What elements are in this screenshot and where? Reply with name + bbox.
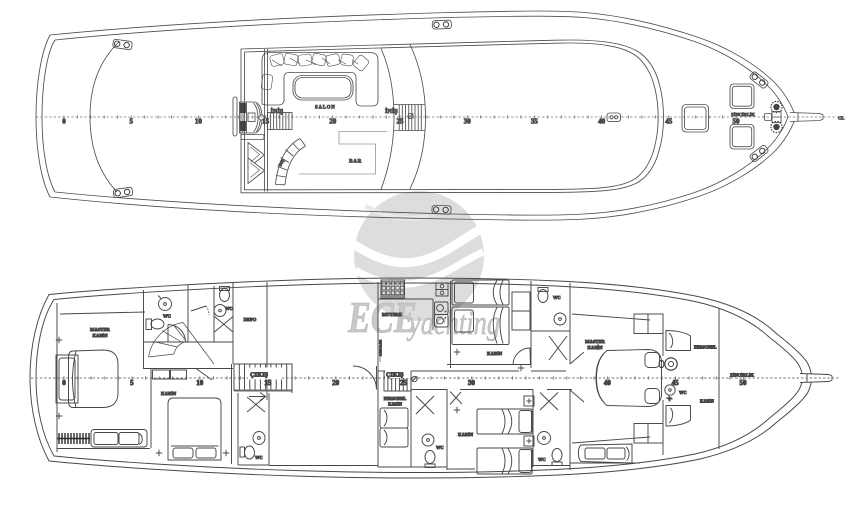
svg-text:CL: CL: [838, 116, 844, 121]
svg-text:20: 20: [329, 118, 337, 126]
svg-text:0: 0: [62, 379, 66, 387]
svg-text:WC: WC: [436, 445, 444, 450]
svg-text:İNİŞ: İNİŞ: [385, 108, 398, 115]
svg-text:KABİN: KABİN: [161, 391, 177, 396]
svg-text:WC: WC: [553, 295, 561, 300]
svg-text:50: 50: [733, 118, 741, 126]
svg-text:İNİŞ: İNİŞ: [271, 108, 284, 115]
svg-text:40: 40: [604, 379, 612, 387]
svg-text:PERSONEL: PERSONEL: [384, 396, 407, 401]
svg-text:DEPO: DEPO: [244, 317, 257, 322]
svg-text:SALON: SALON: [315, 106, 336, 111]
svg-text:25: 25: [397, 118, 405, 126]
svg-text:ZİNCİRLİK: ZİNCİRLİK: [731, 112, 755, 117]
svg-text:35: 35: [531, 118, 539, 126]
svg-text:KABİN: KABİN: [92, 333, 108, 338]
svg-text:WC: WC: [163, 314, 171, 319]
svg-text:5: 5: [130, 379, 134, 387]
svg-text:MASTER: MASTER: [585, 339, 605, 344]
svg-text:PERSONEL: PERSONEL: [694, 345, 717, 350]
svg-text:WC: WC: [679, 390, 687, 395]
svg-text:10: 10: [195, 118, 203, 126]
svg-text:10: 10: [196, 379, 204, 387]
svg-text:KABİN: KABİN: [587, 345, 603, 350]
svg-text:KABİN: KABİN: [700, 399, 714, 404]
svg-text:WC: WC: [255, 455, 263, 460]
svg-text:MUTFAK: MUTFAK: [382, 312, 402, 317]
svg-text:KABİN: KABİN: [487, 351, 503, 356]
svg-text:ÇIKIŞ: ÇIKIŞ: [250, 372, 269, 379]
svg-text:yachting: yachting: [406, 304, 500, 342]
svg-text:30: 30: [468, 379, 476, 387]
svg-text:BUZDOLABI: BUZDOLABI: [380, 340, 383, 356]
svg-text:15: 15: [262, 118, 270, 126]
svg-text:0: 0: [62, 118, 66, 126]
svg-text:ÇIKIŞ: ÇIKIŞ: [386, 372, 404, 379]
svg-text:20: 20: [332, 379, 340, 387]
svg-text:KABİN: KABİN: [388, 402, 402, 407]
svg-text:MASTER: MASTER: [90, 327, 110, 332]
svg-text:KABİN: KABİN: [458, 432, 474, 437]
svg-text:40: 40: [598, 118, 606, 126]
svg-text:50: 50: [740, 379, 748, 387]
svg-text:5: 5: [129, 118, 133, 126]
svg-text:30: 30: [464, 118, 472, 126]
svg-text:WC: WC: [538, 457, 546, 462]
svg-text:45: 45: [665, 118, 673, 126]
svg-text:ECE: ECE: [347, 293, 417, 342]
svg-text:ZİNCİRLİK: ZİNCİRLİK: [730, 373, 754, 378]
svg-text:BAR: BAR: [349, 159, 362, 165]
